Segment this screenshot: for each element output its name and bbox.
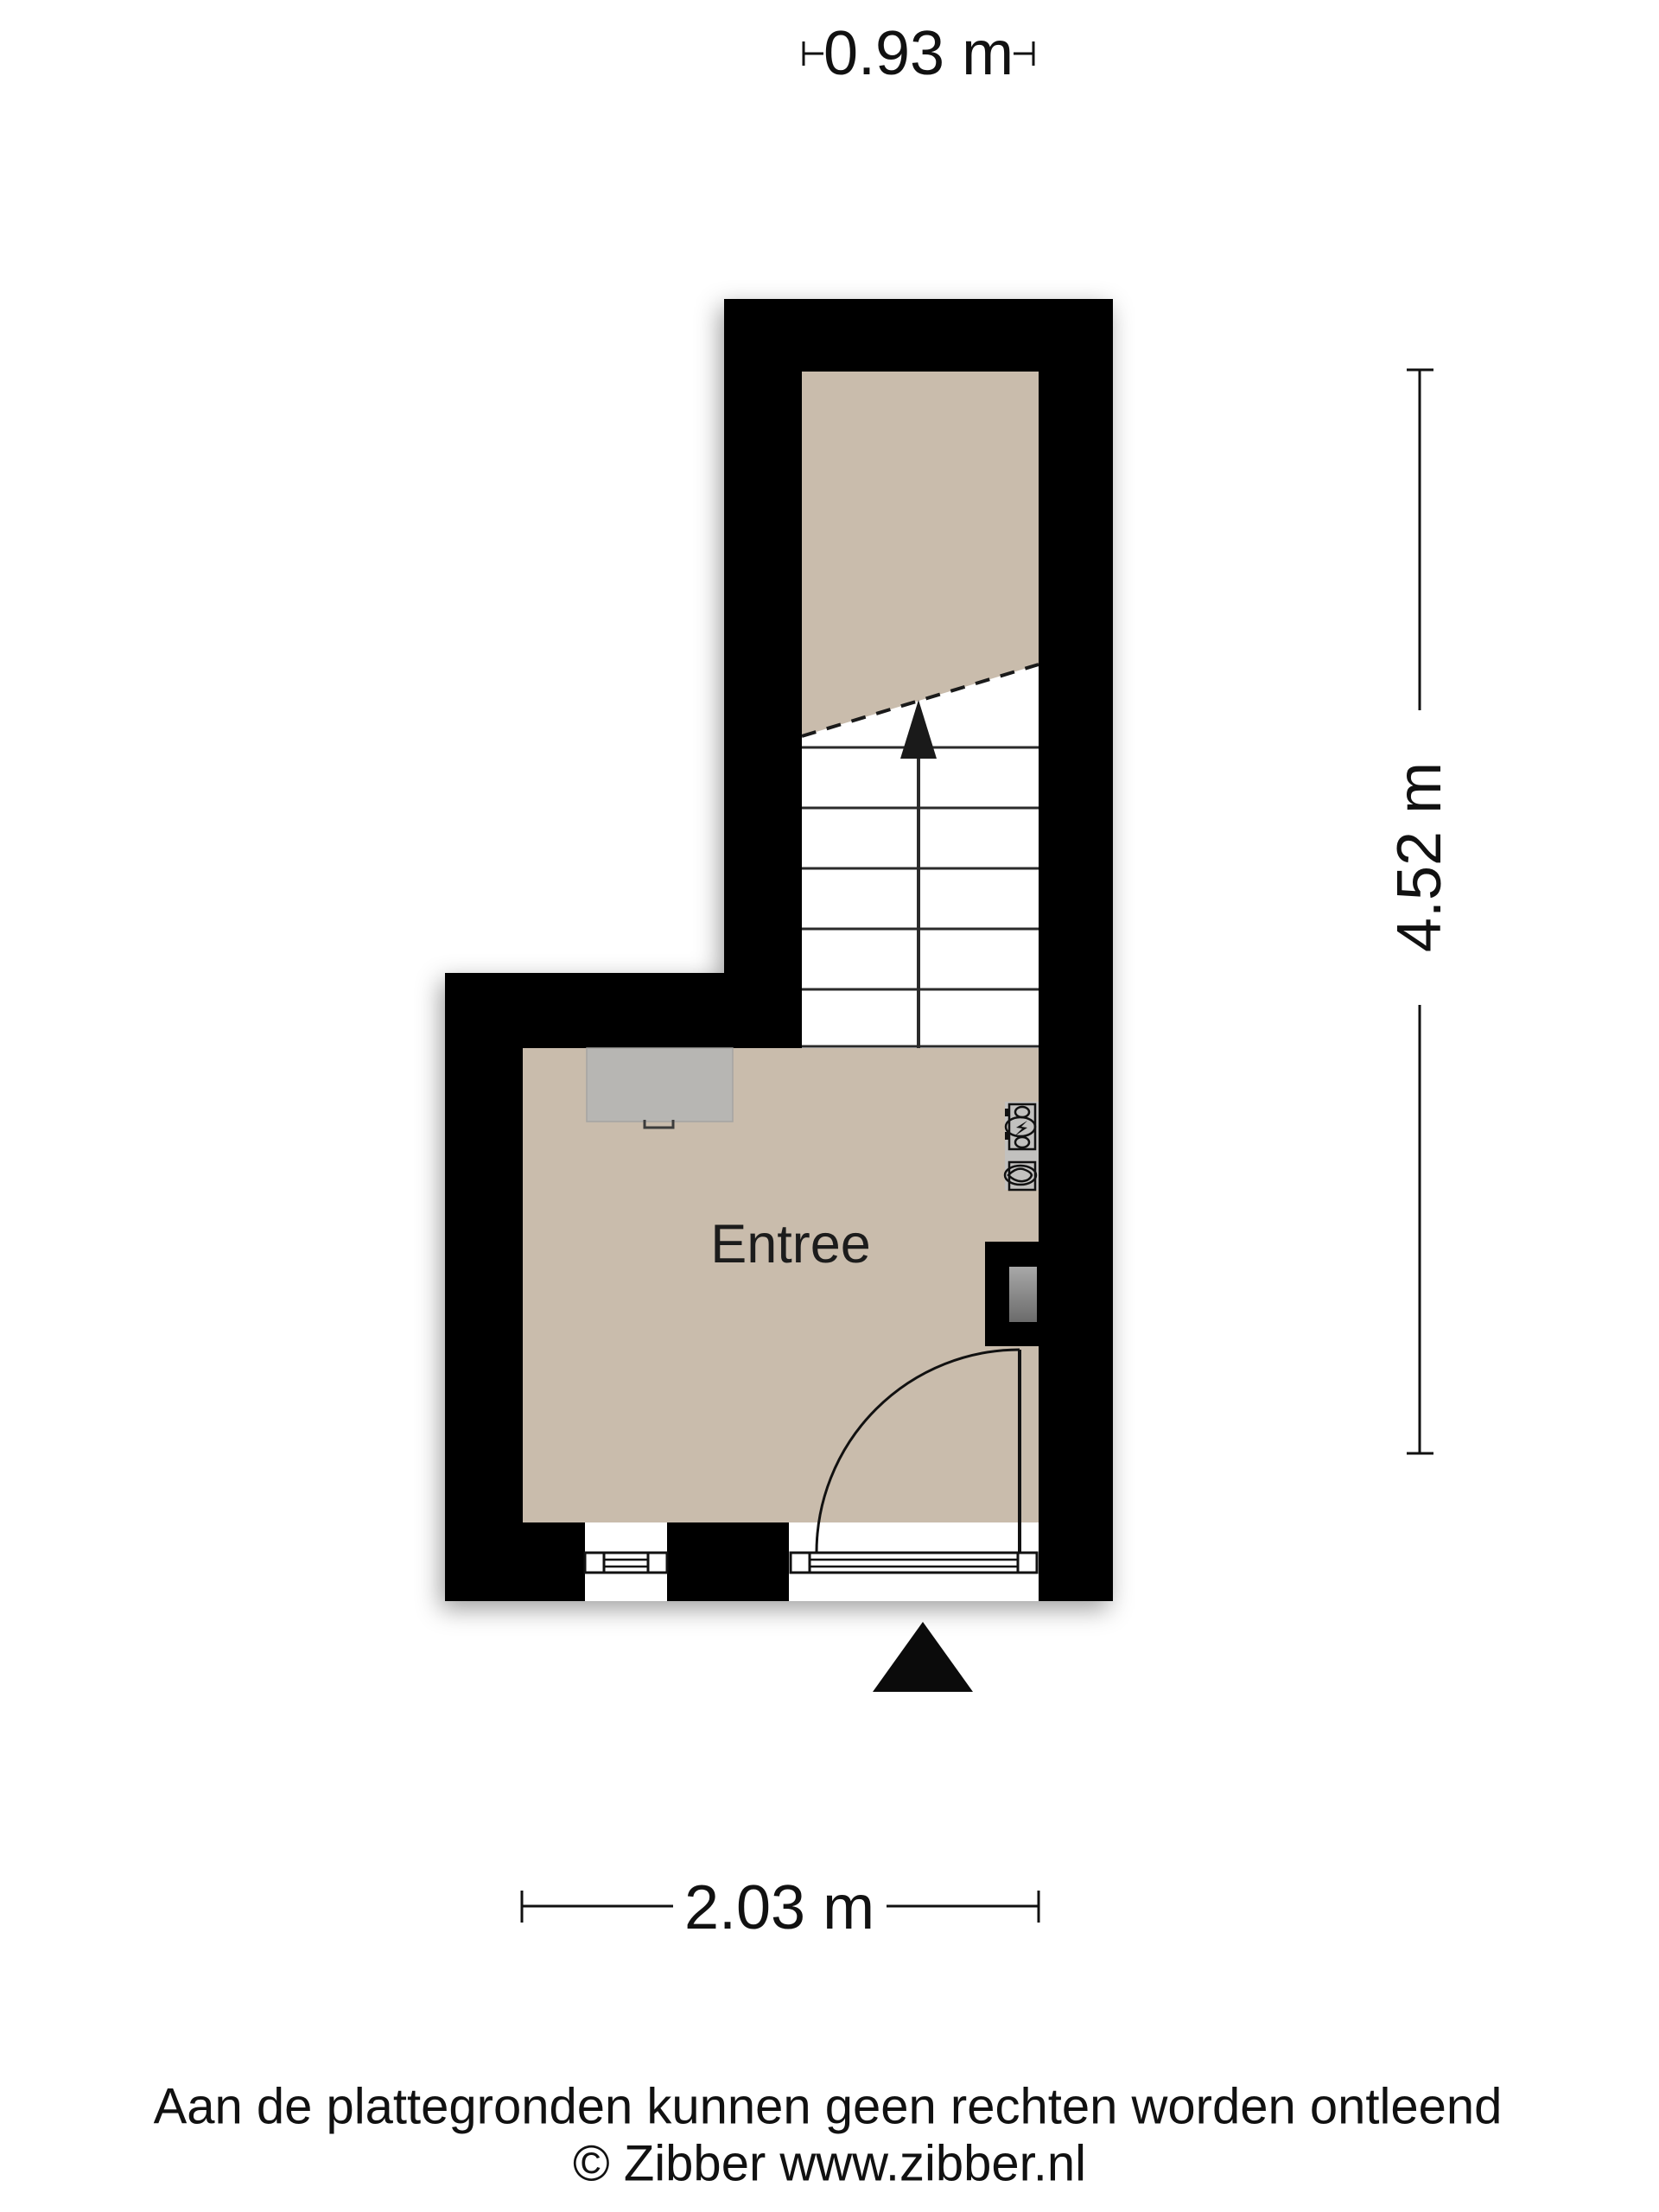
- door-opening: [789, 1522, 1039, 1601]
- dimension-right: 4.52 m: [1385, 370, 1454, 1453]
- flue-inset: [1009, 1267, 1037, 1322]
- dimension-top-label: 0.93 m: [823, 19, 1014, 88]
- dimension-right-label: 4.52 m: [1385, 762, 1454, 952]
- entrance-arrow-icon: [873, 1622, 973, 1692]
- window-opening: [585, 1522, 667, 1601]
- footer-disclaimer: Aan de plattegronden kunnen geen rechten…: [154, 2079, 1503, 2135]
- footer-copyright: © Zibber www.zibber.nl: [573, 2136, 1086, 2192]
- floor-plan-page: Entree 0.93 m 4.52 m 2.03 m: [0, 0, 1659, 2212]
- cabinet: [587, 1048, 733, 1122]
- floor-plan-canvas: Entree 0.93 m 4.52 m 2.03 m: [0, 0, 1659, 2212]
- dimension-bottom-label: 2.03 m: [684, 1873, 874, 1942]
- building: Entree: [445, 299, 1113, 1601]
- footer: Aan de plattegronden kunnen geen rechten…: [154, 2079, 1503, 2192]
- dimension-bottom: 2.03 m: [522, 1873, 1039, 1942]
- meter-icons: [1005, 1102, 1039, 1190]
- room-label: Entree: [710, 1214, 871, 1274]
- dimension-top: 0.93 m: [804, 19, 1033, 88]
